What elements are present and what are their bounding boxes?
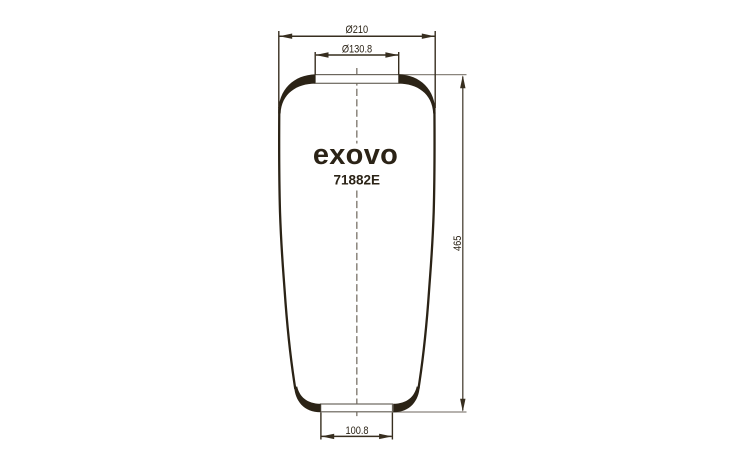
svg-text:exovo: exovo [313, 139, 398, 171]
svg-text:71882E: 71882E [334, 173, 381, 188]
svg-text:465: 465 [452, 235, 464, 251]
svg-text:Ø210: Ø210 [346, 24, 369, 36]
svg-text:100.8: 100.8 [345, 426, 368, 438]
svg-text:Ø130.8: Ø130.8 [342, 44, 373, 56]
